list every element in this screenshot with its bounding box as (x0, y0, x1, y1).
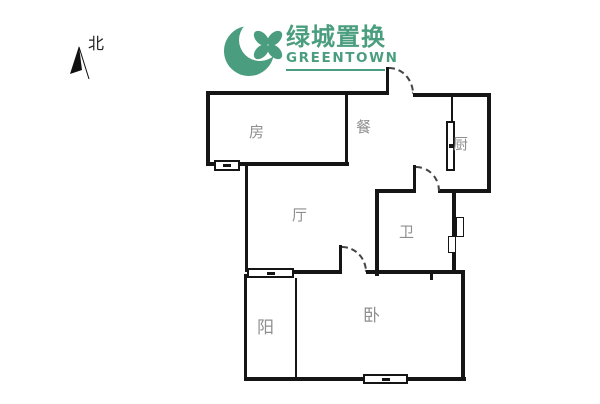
bedroom-window-symbol (363, 374, 408, 384)
wall-bedroom-right (461, 270, 465, 381)
wall-room-dining-divider (345, 95, 348, 164)
wall-room-left (206, 91, 210, 166)
room-window-symbol (214, 160, 240, 171)
wall-bathroom-left (375, 189, 379, 276)
bedroom-door-arc (342, 246, 367, 272)
wall-bottom (244, 377, 466, 381)
north-indicator: 北 (66, 28, 118, 86)
room-label-kitchen: 厨 (453, 136, 468, 152)
room-label-living: 厅 (292, 207, 307, 223)
wall-stub (430, 274, 433, 280)
room-label-bedroom: 卧 (363, 307, 380, 325)
room-label-dining: 餐 (356, 119, 371, 135)
bathroom-door-arc (416, 166, 440, 191)
wall-balcony-right (295, 278, 297, 377)
greentown-crescent-clover-icon (222, 20, 288, 82)
room-label-bathroom: 卫 (399, 224, 414, 240)
entry-door-arc (389, 67, 414, 94)
wall-bathroom-top (375, 189, 416, 193)
wall-bedroom-top (366, 270, 465, 274)
room-label-balcony: 阳 (257, 319, 274, 337)
wall-mid-left (293, 270, 342, 274)
duct-symbol-lower (448, 236, 456, 253)
duct-symbol-upper (456, 217, 464, 237)
logo-text-block: 绿城置换 GREENTOWN (286, 24, 386, 71)
room-label-fang: 房 (249, 124, 264, 140)
balcony-window-symbol (247, 268, 294, 278)
floorplan-image: 绿城置换 GREENTOWN 北 房 餐 厨 厅 卫 (0, 0, 600, 404)
wall-kitchen-right (487, 93, 491, 193)
wall-kitchen-bottom (438, 189, 491, 193)
brand-name-chinese: 绿城置换 (286, 24, 386, 50)
brand-name-english: GREENTOWN (286, 50, 385, 71)
wall-living-left (245, 164, 248, 272)
greentown-logo: 绿城置换 GREENTOWN (222, 18, 392, 80)
wall-balcony-left (244, 274, 247, 381)
wall-kitchen-left (451, 95, 453, 123)
north-arrow-icon (66, 44, 96, 82)
wall-top-left (206, 91, 389, 95)
